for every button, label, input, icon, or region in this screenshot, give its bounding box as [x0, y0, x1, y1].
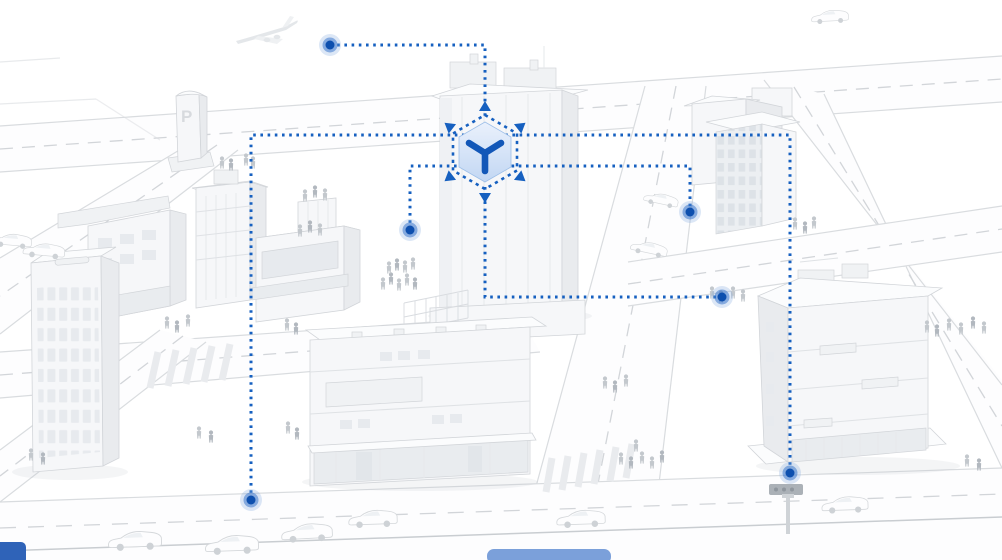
uptown-block [684, 88, 800, 234]
street-retail-building [306, 317, 546, 486]
connector-dot[interactable] [711, 286, 733, 308]
right-office-building [748, 258, 946, 464]
left-office-tower [31, 247, 119, 472]
connector-dot[interactable] [679, 201, 701, 223]
city-illustration: P [0, 0, 1002, 560]
connector-dot[interactable] [319, 34, 341, 56]
connector-dot[interactable] [399, 219, 421, 241]
parking-sign-label: P [181, 107, 193, 126]
airplane [236, 16, 298, 44]
scene-svg: P [0, 0, 1002, 560]
connector-dot[interactable] [779, 462, 801, 484]
connector-dot[interactable] [240, 489, 262, 511]
